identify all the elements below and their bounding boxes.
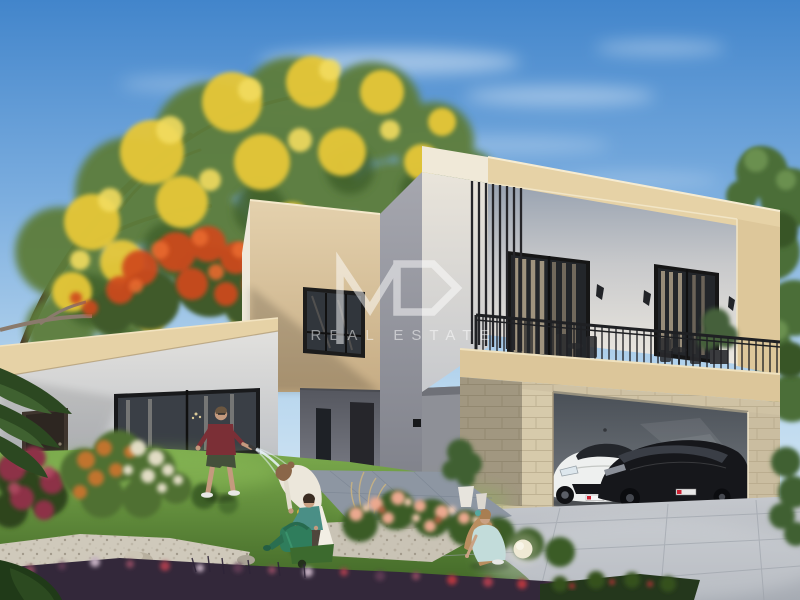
hair-clip [475, 510, 481, 516]
watermark-subtitle: REAL ESTATE [311, 327, 498, 344]
entry-sidelight-window [316, 408, 331, 467]
villa-render-scene: REAL ESTATE [0, 0, 800, 600]
garden-light [507, 533, 539, 565]
volume-window [303, 287, 365, 358]
front-door [350, 402, 374, 473]
doorbell-keypad [413, 419, 421, 427]
